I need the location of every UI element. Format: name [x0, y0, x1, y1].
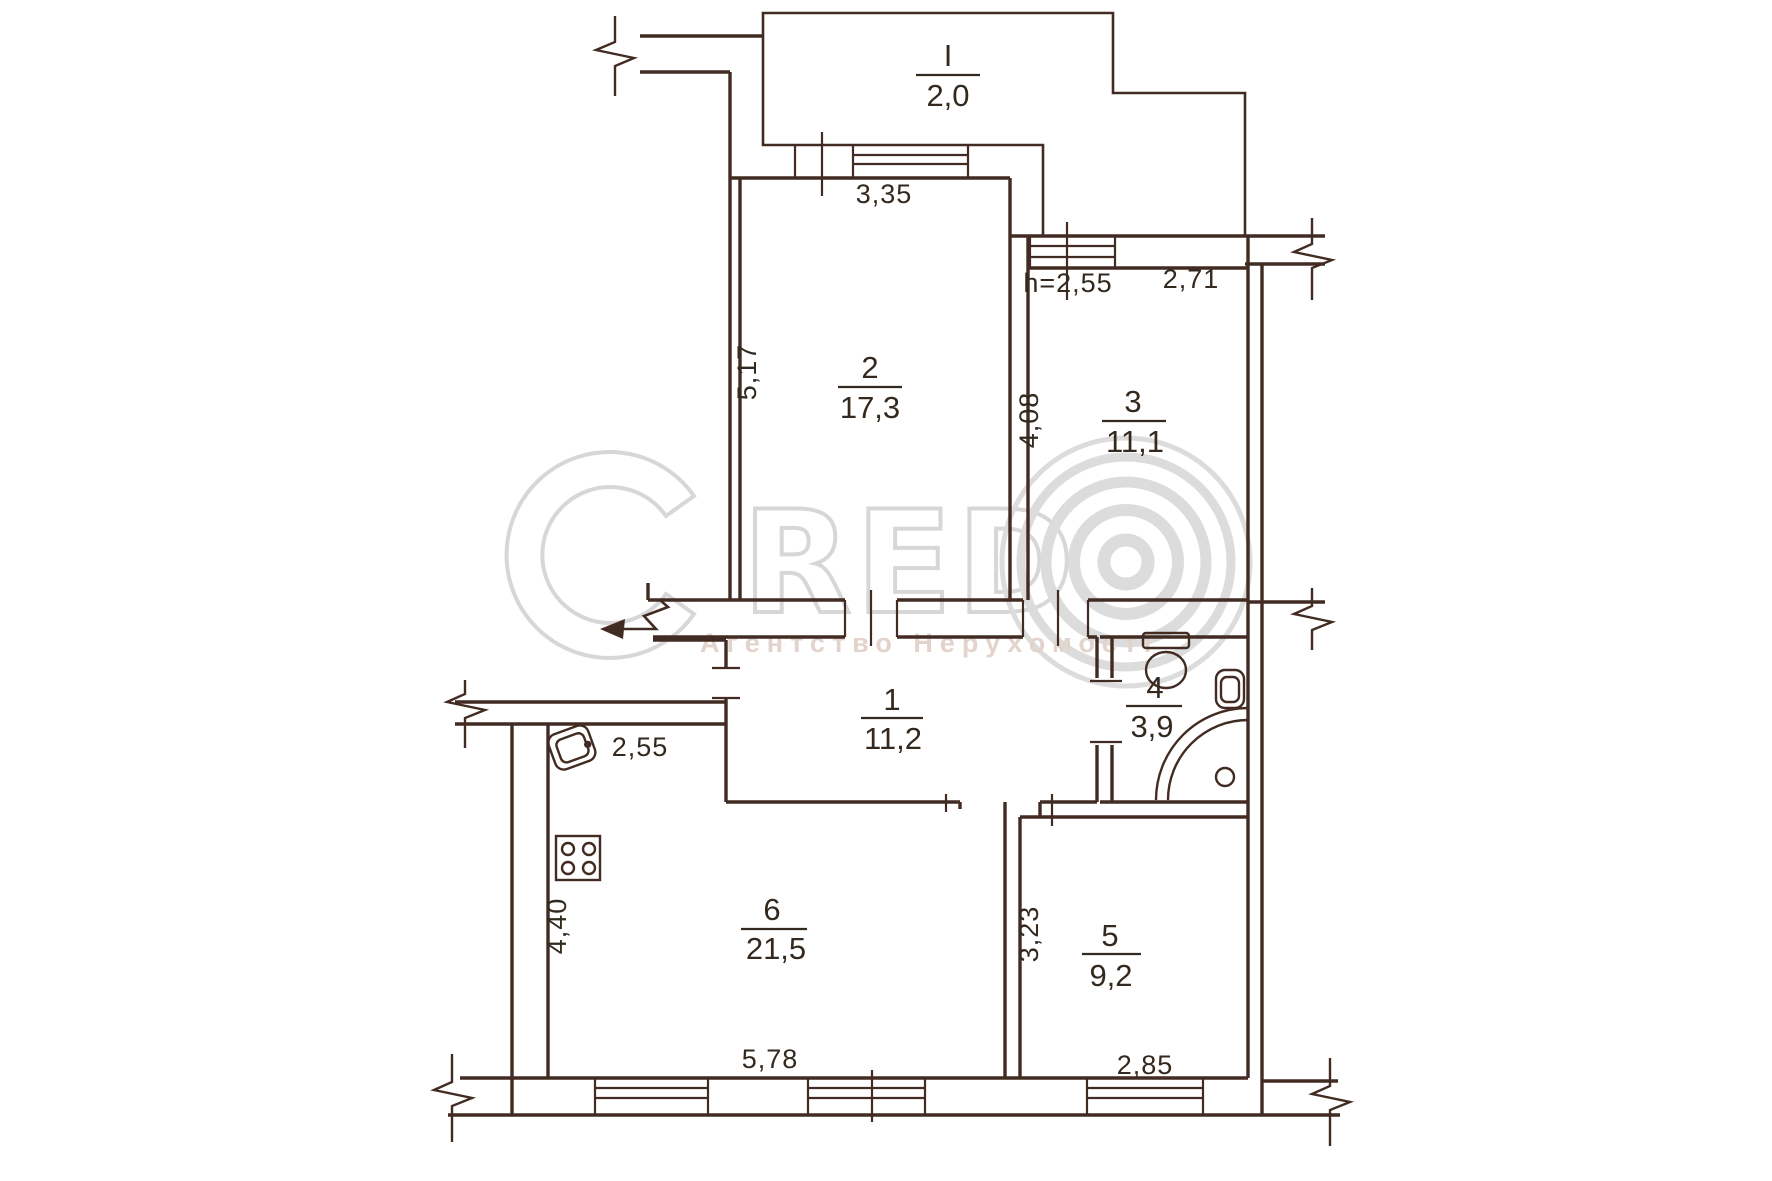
room6-area: 21,5 — [746, 931, 806, 966]
room4-number: 4 — [1146, 670, 1163, 705]
label-room4: 4 3,9 — [1126, 670, 1182, 744]
kitchen-window-1 — [595, 1078, 708, 1115]
stove-icon — [556, 836, 600, 880]
balcony-area: 2,0 — [926, 78, 969, 113]
washbasin-icon — [1216, 670, 1244, 708]
dim-kitchen-top: 2,55 — [612, 732, 669, 762]
watermark-letter-c — [507, 452, 694, 658]
floor-plan-drawing: RED Агентство Нерухомості — [0, 0, 1772, 1181]
label-room2: 2 17,3 — [838, 350, 902, 425]
room6-number: 6 — [763, 892, 780, 927]
room2-area: 17,3 — [840, 390, 900, 425]
credo-watermark: RED Агентство Нерухомості — [507, 438, 1250, 686]
kitchen-sink-icon — [546, 723, 598, 772]
dim-room3-depth: 4,08 — [1014, 392, 1044, 449]
label-room5: 5 9,2 — [1082, 918, 1141, 993]
kitchen-window-2 — [808, 1078, 925, 1115]
room5-door — [946, 794, 1052, 826]
watermark-subtitle: Агентство Нерухомості — [700, 628, 1158, 658]
room3-window — [1030, 236, 1115, 268]
room4-area: 3,9 — [1130, 709, 1173, 744]
balcony-number: I — [944, 38, 953, 73]
dim-kitchen-width: 5,78 — [742, 1044, 799, 1074]
break-bottom-left — [434, 1054, 472, 1142]
room2-number: 2 — [861, 350, 878, 385]
dim-room5-depth: 3,23 — [1014, 906, 1044, 963]
room1-number: 1 — [883, 682, 900, 717]
room5-area: 9,2 — [1089, 958, 1132, 993]
break-right-top — [1294, 218, 1332, 300]
room1-entry-opening — [712, 668, 740, 698]
room1-area: 11,2 — [864, 721, 922, 756]
dim-room2-depth: 5,17 — [732, 344, 762, 401]
room4-door — [1090, 681, 1122, 742]
label-room1: 1 11,2 — [861, 682, 923, 756]
floor-plan-page: RED Агентство Нерухомості — [0, 0, 1772, 1181]
label-room3: 3 11,1 — [1102, 384, 1166, 459]
dim-room3-width: 2,71 — [1163, 264, 1220, 294]
break-bottom-right — [1312, 1058, 1350, 1146]
dim-room5-width: 2,85 — [1117, 1050, 1174, 1080]
label-balcony: I 2,0 — [916, 38, 980, 113]
label-room6: 6 21,5 — [741, 892, 807, 966]
room5-number: 5 — [1101, 918, 1118, 953]
break-right-middle — [1294, 588, 1332, 650]
room3-area: 11,1 — [1106, 424, 1164, 459]
dim-balcony-window: 3,35 — [856, 179, 913, 209]
kitchen-fixtures — [546, 723, 600, 880]
break-top-left — [596, 16, 634, 96]
break-left-middle — [447, 680, 485, 748]
room3-number: 3 — [1124, 384, 1141, 419]
dim-kitchen-depth: 4,40 — [542, 898, 572, 955]
dim-ceiling-height: h=2,55 — [1023, 268, 1112, 298]
balcony-outline — [763, 13, 1245, 236]
room5-window — [1087, 1078, 1203, 1115]
